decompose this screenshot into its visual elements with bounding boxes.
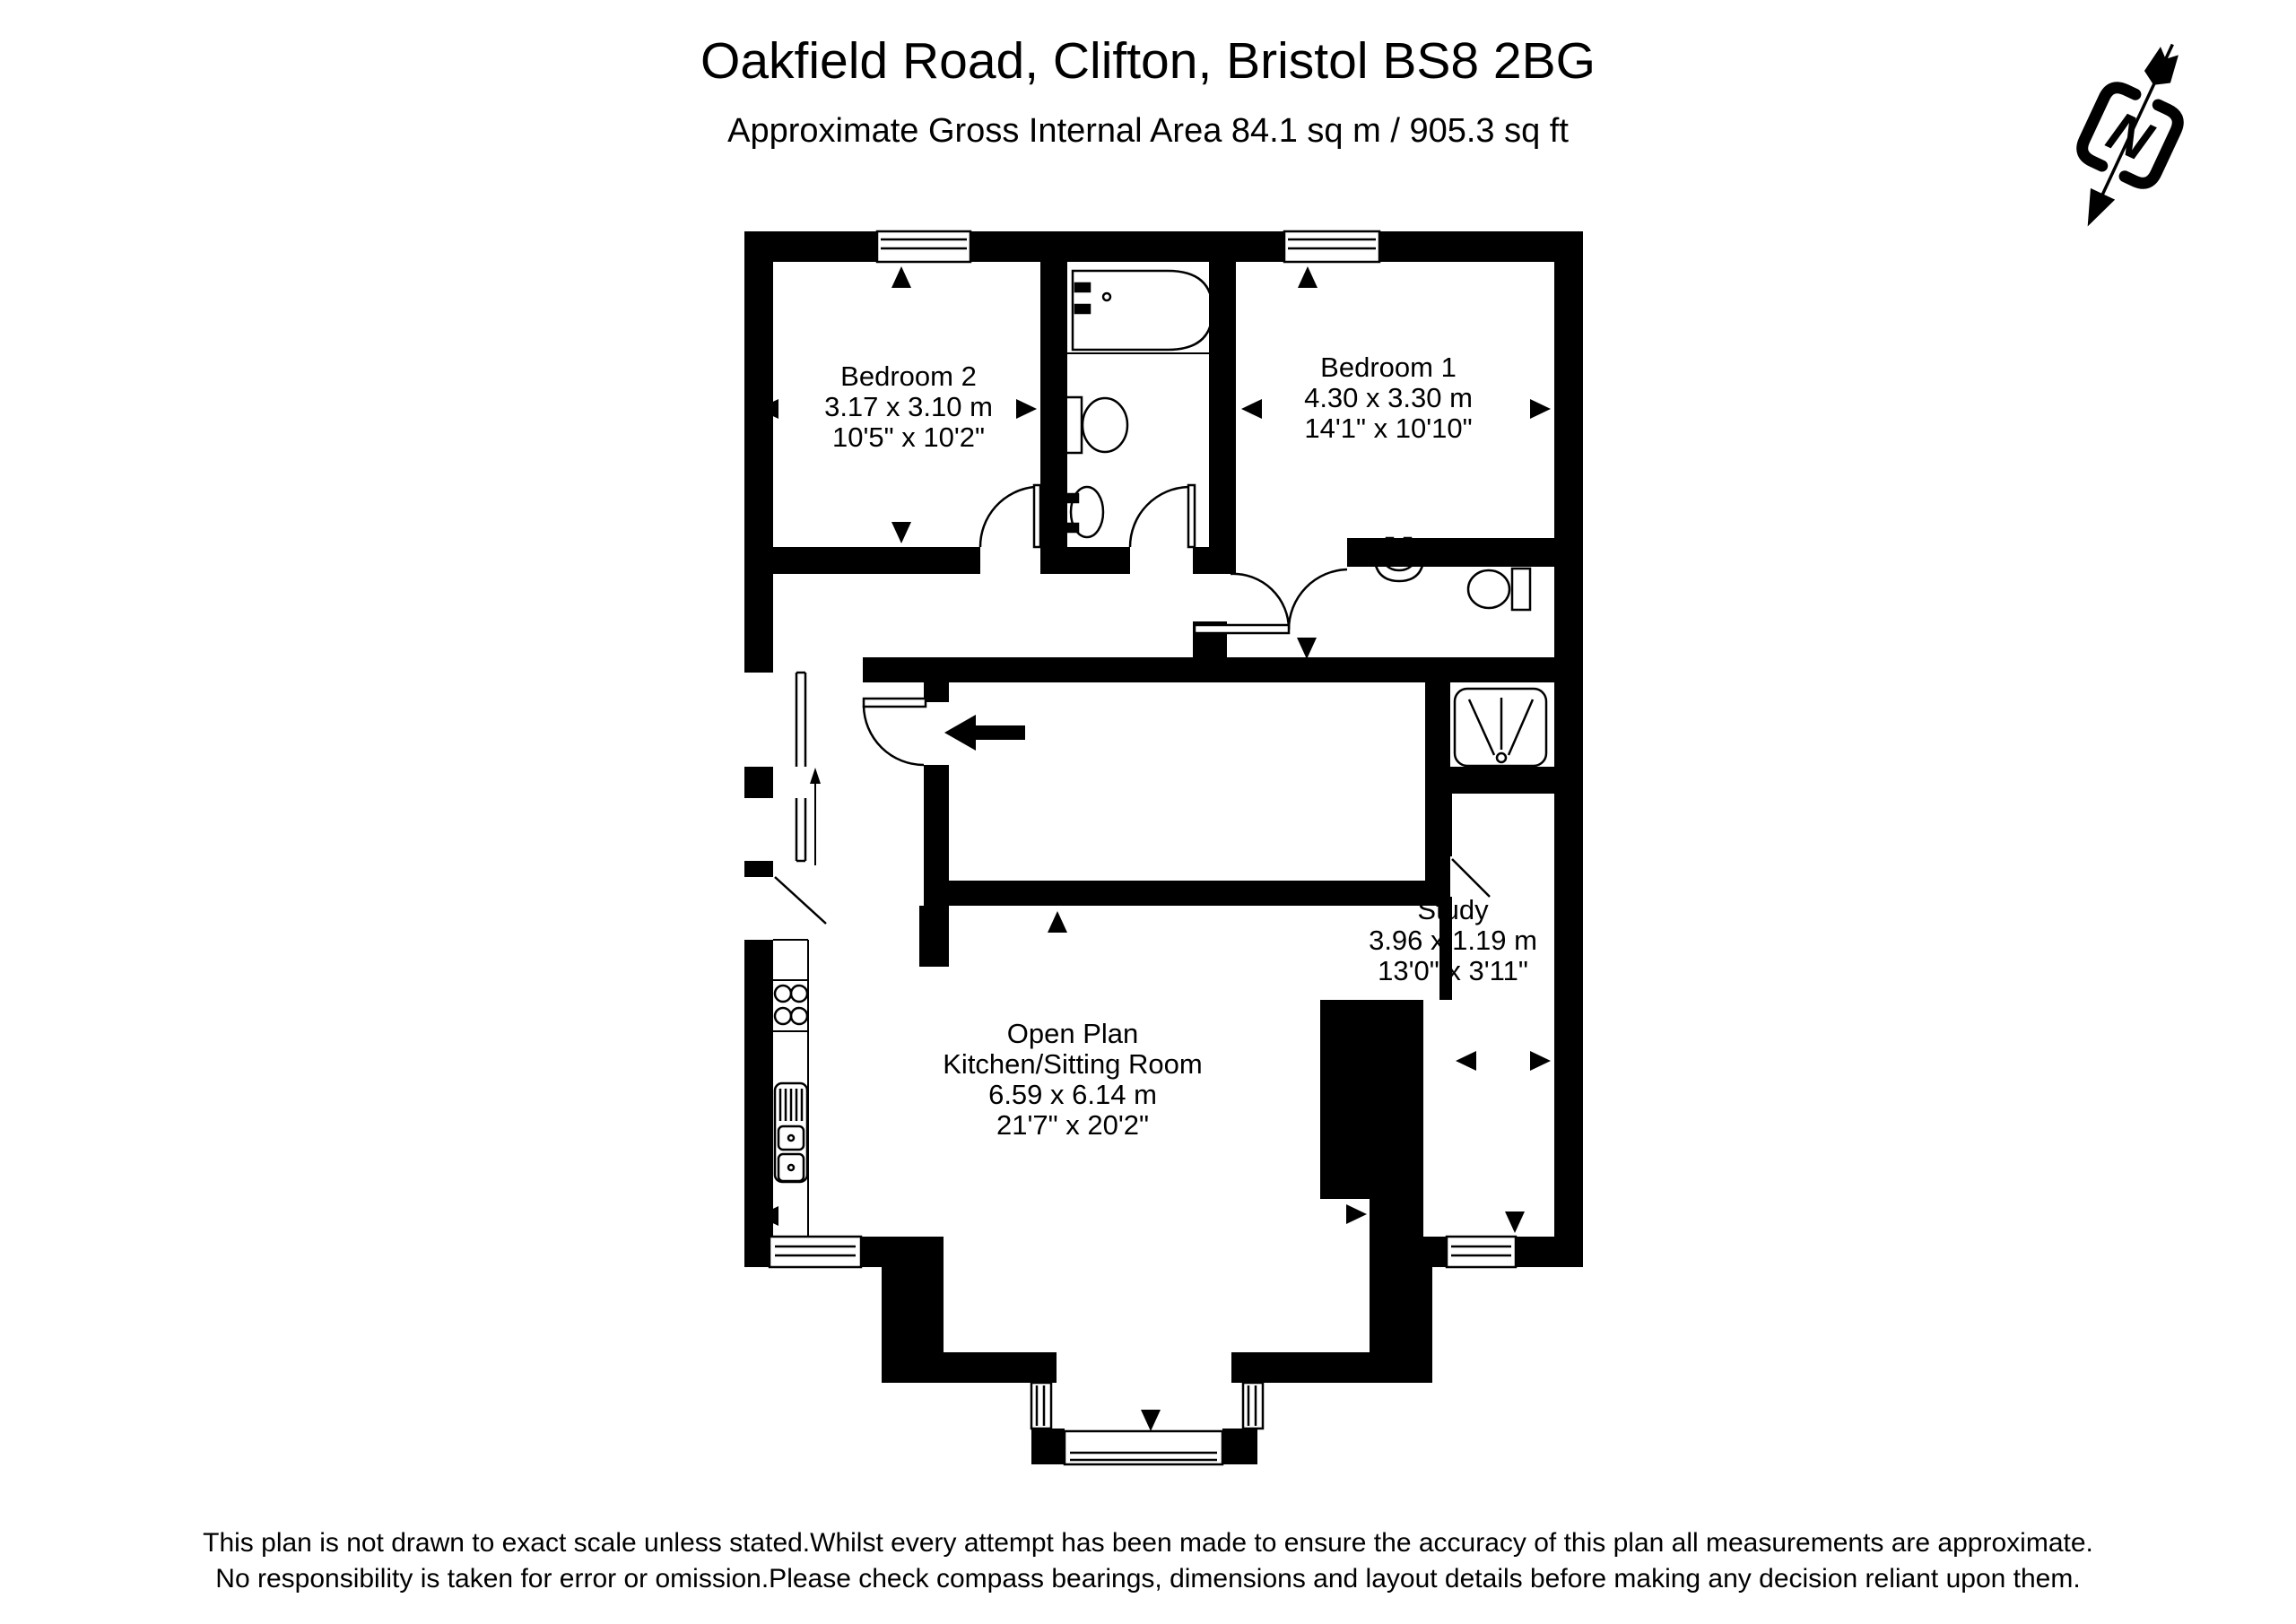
label-study: Study 3.96 x 1.19 m 13'0" x 3'11" [1369,894,1537,986]
label-openplan: Open Plan Kitchen/Sitting Room 6.59 x 6.… [943,1018,1202,1141]
kitchen-sink-icon [775,1083,807,1182]
door-bathroom [1130,485,1195,547]
marker-down-study-icon [1505,1211,1525,1233]
room-dim-metric: 4.30 x 3.30 m [1304,382,1473,413]
disclaimer-line2: No responsibility is taken for error or … [215,1564,2080,1594]
marker-down-bedroom1-icon [1297,638,1317,659]
room-dim-imperial: 13'0" x 3'11" [1378,955,1528,986]
labels: Oakfield Road, Clifton, Bristol BS8 2BG … [203,32,2093,1594]
marker-right-openplan-icon [1346,1204,1367,1224]
compass-fletching-icon [2141,45,2183,91]
door-study [1452,859,1490,897]
entrance-arrow-icon [944,715,1025,751]
marker-right-study-icon [1530,1051,1551,1071]
room-dim-metric: 3.17 x 3.10 m [824,391,993,422]
marker-left-bedroom1-icon [1241,399,1262,419]
toilet-icon-ensuite [1468,569,1530,610]
stairs-up-arrow [810,768,821,865]
window-bay-right [1243,1383,1263,1429]
marker-left-study-icon [1456,1051,1476,1071]
compass-arrowhead-icon [2075,188,2115,232]
door-entrance [864,699,926,765]
window-bay-front [1065,1431,1222,1464]
room-dim-imperial: 21'7" x 20'2" [996,1109,1149,1141]
compass: N [2052,28,2208,243]
marker-right-bedroom1-icon [1530,399,1551,419]
label-bedroom2: Bedroom 2 3.17 x 3.10 m 10'5" x 10'2" [824,360,993,453]
room-name: Bedroom 1 [1320,352,1457,383]
toilet-icon-bathroom [1065,397,1127,453]
room-dim-metric: 3.96 x 1.19 m [1369,925,1537,956]
room-dim-imperial: 14'1" x 10'10" [1304,413,1472,444]
window-kitchen [770,1237,861,1267]
room-name: Open Plan [1007,1018,1139,1049]
floor-plan: N Oakfield Road, Clifton, Bristol BS8 2B… [0,0,2296,1624]
room-dim-imperial: 10'5" x 10'2" [832,421,985,453]
marker-right-bedroom2-icon [1016,399,1037,419]
room-name: Study [1417,894,1489,925]
sink-icon-bathroom [1067,487,1103,537]
window-left-wall [796,673,805,861]
window-study [1447,1237,1516,1267]
shower-icon [1455,689,1546,766]
disclaimer-line1: This plan is not drawn to exact scale un… [203,1528,2093,1558]
marker-up-bedroom2-icon [891,266,911,288]
marker-up-bedroom1-icon [1298,266,1318,288]
hob-icon [773,980,808,1031]
door-left-external [775,877,826,924]
kitchen-counter [773,940,808,1237]
compass-north-label: N [2098,100,2161,174]
marker-up-openplan-icon [1048,911,1067,933]
marker-down-bay-icon [1141,1410,1161,1431]
label-bedroom1: Bedroom 1 4.30 x 3.30 m 14'1" x 10'10" [1304,352,1473,444]
window-bedroom2 [877,231,970,262]
room-name: Bedroom 2 [840,360,977,392]
room-name-line2: Kitchen/Sitting Room [943,1048,1202,1080]
marker-down-bedroom2-icon [891,522,911,543]
page-subtitle: Approximate Gross Internal Area 84.1 sq … [727,112,1569,150]
page-title: Oakfield Road, Clifton, Bristol BS8 2BG [700,32,1596,90]
window-bedroom1 [1284,231,1379,262]
window-bay-left [1031,1383,1051,1429]
bath-icon [1067,271,1213,353]
room-dim-metric: 6.59 x 6.14 m [988,1079,1157,1110]
door-bedroom2 [980,485,1040,547]
